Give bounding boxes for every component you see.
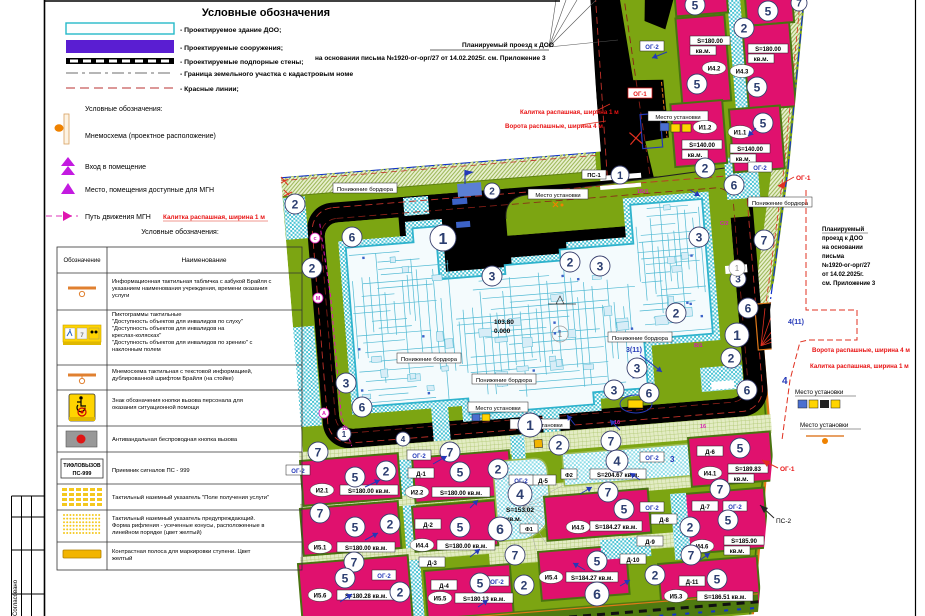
svg-text:И5.3: И5.3 (670, 594, 683, 600)
svg-text:6: 6 (745, 301, 752, 315)
svg-text:7: 7 (317, 506, 324, 520)
svg-text:7: 7 (761, 233, 768, 247)
svg-text:Место, помещения доступные для: Место, помещения доступные для МГН (85, 187, 214, 194)
svg-text:4: 4 (401, 435, 406, 444)
svg-text:на основании письма №1920-ог-о: на основании письма №1920-ог-орг/27 от 1… (315, 55, 546, 62)
svg-text:ОГ-1: ОГ-1 (796, 175, 811, 182)
svg-text:5: 5 (621, 502, 628, 516)
svg-text:S=180.00 кв.м.: S=180.00 кв.м. (445, 544, 487, 550)
svg-text:И5.1: И5.1 (314, 545, 327, 551)
svg-text:7: 7 (717, 482, 724, 496)
svg-text:2: 2 (309, 261, 316, 275)
svg-text:6: 6 (359, 400, 366, 414)
svg-text:на основании: на основании (822, 245, 863, 251)
svg-text:- Красные линии;: - Красные линии; (180, 86, 239, 93)
svg-text:103.80: 103.80 (494, 319, 514, 326)
svg-text:1: 1 (439, 231, 448, 248)
svg-text:Условные обозначения:: Условные обозначения: (141, 228, 219, 236)
svg-text:Место установки: Место установки (655, 115, 700, 121)
svg-text:А: А (322, 411, 326, 417)
svg-text:желтый: желтый (112, 555, 132, 562)
svg-text:ПС-2: ПС-2 (776, 518, 792, 525)
svg-text:Д-4: Д-4 (439, 584, 449, 590)
svg-text:ОГ-2: ОГ-2 (412, 454, 426, 460)
svg-text:2: 2 (387, 517, 394, 531)
svg-text:Условные обозначения:: Условные обозначения: (85, 105, 163, 113)
svg-text:S=180.00 кв.м.: S=180.00 кв.м. (348, 489, 390, 495)
svg-text:2: 2 (687, 520, 694, 534)
svg-text:Знак обозначения кнопки вызова: Знак обозначения кнопки вызова персонала… (112, 398, 243, 404)
svg-text:письма: письма (822, 254, 845, 260)
svg-text:6: 6 (496, 521, 504, 537)
svg-text:Д-8: Д-8 (659, 518, 669, 524)
svg-text:3: 3 (634, 361, 641, 375)
svg-text:И4.4: И4.4 (416, 543, 429, 549)
svg-text:ПС-999: ПС-999 (73, 471, 92, 477)
svg-text:"Доступность объектов для инва: "Доступность объектов для инвалидов по с… (112, 319, 243, 325)
svg-text:7: 7 (315, 445, 322, 459)
svg-text:5: 5 (457, 465, 464, 479)
svg-text:2: 2 (489, 187, 495, 198)
svg-text:3: 3 (597, 259, 604, 273)
svg-text:Приемник сигналов ПС - 999: Приемник сигналов ПС - 999 (112, 468, 190, 474)
svg-text:ОГ-2: ОГ-2 (645, 45, 659, 51)
svg-text:S=184.27 кв.м.: S=184.27 кв.м. (595, 525, 637, 531)
svg-text:1Б/1: 1Б/1 (637, 189, 649, 195)
svg-text:ОГ-2: ОГ-2 (377, 574, 391, 580)
svg-text:1: 1 (526, 417, 534, 433)
svg-text:Согласовано: Согласовано (13, 579, 19, 616)
svg-text:Мнемосхема (проектное располож: Мнемосхема (проектное расположение) (85, 133, 216, 140)
svg-text:см. Приложение 3: см. Приложение 3 (822, 281, 876, 287)
svg-text:"Доступность объектов для инва: "Доступность объектов для инвалидов на (112, 326, 225, 332)
svg-text:И5.6: И5.6 (314, 593, 327, 599)
svg-text:ОГ-1: ОГ-1 (780, 466, 795, 473)
svg-text:Информационная тактильная табл: Информационная тактильная табличка с азб… (112, 278, 271, 285)
svg-text:S=184.27 кв.м.: S=184.27 кв.м. (571, 576, 613, 582)
svg-text:3: 3 (696, 230, 703, 244)
svg-text:Калитка распашная, ширина 1 м: Калитка распашная, ширина 1 м (163, 214, 265, 221)
svg-text:И5.5: И5.5 (434, 596, 447, 602)
svg-text:Ф2: Ф2 (565, 473, 573, 479)
svg-text:Д-1: Д-1 (416, 472, 426, 478)
svg-text:услуги: услуги (112, 293, 129, 299)
svg-text:Д-3: Д-3 (427, 561, 437, 567)
svg-text:И1.1: И1.1 (734, 130, 747, 136)
svg-text:Тактильный наземный указатель: Тактильный наземный указатель предупрежд… (112, 515, 255, 522)
svg-text:кв.м.: кв.м. (734, 477, 749, 483)
svg-text:2: 2 (521, 578, 528, 592)
svg-text:кв.м.: кв.м. (696, 49, 711, 55)
svg-text:Место установки: Место установки (800, 422, 849, 429)
svg-text:ОГ-1: ОГ-1 (633, 92, 647, 98)
svg-text:2: 2 (556, 438, 563, 452)
svg-text:Понижение бордюра: Понижение бордюра (401, 357, 458, 363)
svg-text:5: 5 (692, 0, 699, 12)
svg-text:Место установки: Место установки (795, 389, 844, 396)
svg-text:7: 7 (608, 434, 615, 448)
svg-text:Ворота распашные, ширина 4 м: Ворота распашные, ширина 4 м (812, 347, 910, 354)
svg-text:2: 2 (741, 21, 748, 35)
svg-text:5: 5 (725, 513, 732, 527)
svg-text:2: 2 (397, 585, 404, 599)
svg-text:Обозначение: Обозначение (63, 258, 101, 264)
svg-text:- Проектируемое здание ДОО;: - Проектируемое здание ДОО; (180, 27, 281, 34)
svg-text:Пиктограммы тактильные: Пиктограммы тактильные (112, 312, 181, 318)
svg-text:Вход в помещение: Вход в помещение (85, 164, 146, 171)
svg-text:И2.2: И2.2 (411, 490, 424, 496)
svg-text:Д-5: Д-5 (538, 479, 548, 485)
svg-text:И4.3: И4.3 (736, 69, 749, 75)
svg-text:Путь движения МГН: Путь движения МГН (85, 214, 151, 221)
svg-text:- Проектируемые подпорные стен: - Проектируемые подпорные стены; (180, 59, 304, 66)
svg-text:Условные обозначения: Условные обозначения (202, 7, 330, 19)
svg-text:3: 3 (489, 269, 496, 283)
svg-text:7: 7 (447, 445, 454, 459)
svg-text:"Доступность объектов для инва: "Доступность объектов для инвалидов по з… (112, 340, 252, 346)
svg-text:кв.м.: кв.м. (688, 153, 703, 159)
svg-text:5: 5 (754, 80, 761, 94)
svg-text:1б: 1б (342, 425, 348, 432)
svg-text:S=180.00 кв.м.: S=180.00 кв.м. (345, 546, 387, 552)
svg-text:В/1: В/1 (694, 343, 703, 349)
svg-text:Контрастная полоса для маркиро: Контрастная полоса для маркировки ступен… (112, 549, 251, 555)
svg-text:5: 5 (594, 554, 601, 568)
svg-text:2: 2 (567, 255, 574, 269)
svg-text:ОГ-2: ОГ-2 (291, 469, 305, 475)
svg-text:4: 4 (782, 376, 788, 387)
svg-text:С/2: С/2 (720, 221, 729, 227)
svg-text:Понижение бордюра: Понижение бордюра (612, 336, 669, 342)
svg-text:ПС-1: ПС-1 (587, 173, 601, 179)
svg-text:ОГ-2: ОГ-2 (490, 580, 504, 586)
svg-text:5: 5 (737, 441, 744, 455)
svg-text:5: 5 (714, 572, 721, 586)
svg-text:7: 7 (605, 485, 612, 499)
svg-text:№1920-ог-орг/27: №1920-ог-орг/27 (822, 262, 871, 269)
svg-text:указанием наименования учрежде: указанием наименования учреждения, време… (112, 286, 267, 292)
svg-text:М: М (316, 296, 321, 302)
svg-text:S=140.00: S=140.00 (689, 143, 716, 149)
svg-text:S=180.00: S=180.00 (755, 47, 782, 53)
svg-text:И5.4: И5.4 (545, 575, 558, 581)
svg-text:И2.1: И2.1 (316, 488, 329, 494)
svg-text:3: 3 (611, 383, 618, 397)
svg-text:7: 7 (688, 548, 695, 562)
svg-text:Д-7: Д-7 (700, 505, 710, 511)
svg-text:- Граница земельного участка с: - Граница земельного участка с кадастров… (180, 71, 353, 78)
svg-text:5: 5 (342, 571, 349, 585)
svg-text:7: 7 (796, 0, 802, 10)
svg-text:3: 3 (670, 455, 675, 464)
svg-text:2: 2 (652, 568, 659, 582)
svg-text:Форма рифления - усеченные кон: Форма рифления - усеченные конусы, распо… (112, 523, 264, 529)
svg-text:5: 5 (352, 470, 359, 484)
svg-text:4: 4 (613, 454, 621, 469)
svg-text:от 14.02.2025г.: от 14.02.2025г. (822, 272, 864, 278)
svg-text:6: 6 (646, 386, 653, 400)
svg-text:линейном порядке (цвет желтый): линейном порядке (цвет желтый) (112, 529, 202, 536)
svg-text:5: 5 (457, 520, 464, 534)
svg-text:5: 5 (352, 520, 359, 534)
svg-text:проезд к ДОО: проезд к ДОО (822, 236, 863, 242)
svg-text:И4.1: И4.1 (704, 471, 717, 477)
svg-text:кв.м.: кв.м. (754, 57, 769, 63)
svg-text:Планируемый проезд к ДОО: Планируемый проезд к ДОО (462, 41, 554, 49)
svg-text:S=140.00: S=140.00 (737, 147, 764, 153)
svg-text:2: 2 (673, 306, 680, 320)
svg-text:наклонным полем: наклонным полем (112, 347, 161, 353)
svg-text:Д-11: Д-11 (686, 580, 699, 586)
svg-text:5: 5 (694, 77, 701, 91)
svg-text:4(11): 4(11) (788, 319, 804, 326)
svg-text:ОГ-2: ОГ-2 (753, 166, 767, 172)
svg-text:4: 4 (516, 486, 524, 502)
svg-text:S=180.00 кв.м.: S=180.00 кв.м. (440, 491, 482, 497)
svg-text:И4.2: И4.2 (708, 66, 721, 72)
svg-text:1: 1 (733, 327, 741, 343)
svg-text:5: 5 (760, 116, 767, 130)
svg-text:Наименование: Наименование (181, 257, 226, 264)
svg-text:Калитка распашная, ширина 1 м: Калитка распашная, ширина 1 м (520, 109, 619, 116)
svg-text:1: 1 (735, 264, 740, 273)
svg-text:Место установки: Место установки (475, 406, 520, 412)
svg-text:0.000: 0.000 (494, 328, 511, 335)
svg-text:7: 7 (351, 555, 358, 569)
svg-text:Д-2: Д-2 (423, 523, 433, 529)
svg-text:кв.м.: кв.м. (730, 549, 745, 555)
svg-text:6: 6 (593, 586, 601, 602)
svg-text:Калитка распашная, ширина 1 м: Калитка распашная, ширина 1 м (810, 363, 909, 370)
svg-text:ТИФЛОВЫЗОВ: ТИФЛОВЫЗОВ (63, 463, 101, 469)
svg-text:Ф1: Ф1 (525, 527, 533, 533)
svg-text:креслах-колясках": креслах-колясках" (112, 333, 161, 339)
svg-text:Понижение бордюра: Понижение бордюра (752, 201, 809, 207)
svg-text:S=185.90: S=185.90 (731, 539, 758, 545)
svg-text:5: 5 (765, 4, 772, 18)
svg-text:- Проектируемые сооружения;: - Проектируемые сооружения; (180, 45, 283, 52)
svg-text:6: 6 (744, 383, 751, 397)
svg-text:2: 2 (495, 462, 502, 476)
svg-text:S=180.00: S=180.00 (697, 39, 724, 45)
svg-text:И1.2: И1.2 (699, 125, 712, 131)
svg-text:Мнемосхема тактильная с тексто: Мнемосхема тактильная с текстовой информ… (112, 368, 253, 375)
svg-text:Д-9: Д-9 (645, 540, 655, 546)
svg-text:16: 16 (700, 424, 706, 430)
svg-text:с: с (313, 236, 316, 242)
svg-text:Понижение бордюра: Понижение бордюра (337, 187, 394, 193)
svg-text:2: 2 (728, 351, 735, 365)
svg-text:S=189.83: S=189.83 (735, 467, 762, 473)
svg-text:3(11): 3(11) (626, 347, 642, 354)
svg-text:6: 6 (731, 178, 738, 192)
svg-text:5: 5 (477, 576, 484, 590)
svg-text:Тактильный наземный указатель: Тактильный наземный указатель "Поле полу… (112, 494, 269, 501)
svg-text:И4.5: И4.5 (572, 525, 585, 531)
svg-text:7: 7 (512, 548, 519, 562)
svg-text:Д-6: Д-6 (705, 450, 715, 456)
svg-text:2: 2 (702, 161, 709, 175)
svg-text:6: 6 (349, 230, 356, 244)
svg-text:1: 1 (617, 170, 623, 182)
svg-text:Планируемый: Планируемый (822, 226, 864, 233)
svg-text:S=153.02: S=153.02 (506, 507, 534, 514)
svg-text:Понижение бордюра: Понижение бордюра (476, 378, 533, 384)
svg-text:ОГ-2: ОГ-2 (645, 456, 659, 462)
svg-text:Антивандальная беспроводная кн: Антивандальная беспроводная кнопка вызов… (112, 437, 238, 443)
svg-text:дублированной шрифтом Брайля (: дублированной шрифтом Брайля (на стойке) (112, 375, 234, 382)
svg-text:3: 3 (343, 376, 350, 390)
svg-text:оказания ситуационной помощи: оказания ситуационной помощи (112, 404, 199, 411)
svg-text:Место установки: Место установки (535, 193, 580, 199)
svg-text:Д-10: Д-10 (627, 558, 641, 564)
svg-text:1: 1 (558, 330, 563, 339)
svg-text:2: 2 (383, 464, 390, 478)
svg-text:S=186.51 кв.м.: S=186.51 кв.м. (704, 595, 746, 601)
svg-text:2: 2 (292, 197, 299, 211)
svg-text:ОГ-2: ОГ-2 (645, 506, 659, 512)
